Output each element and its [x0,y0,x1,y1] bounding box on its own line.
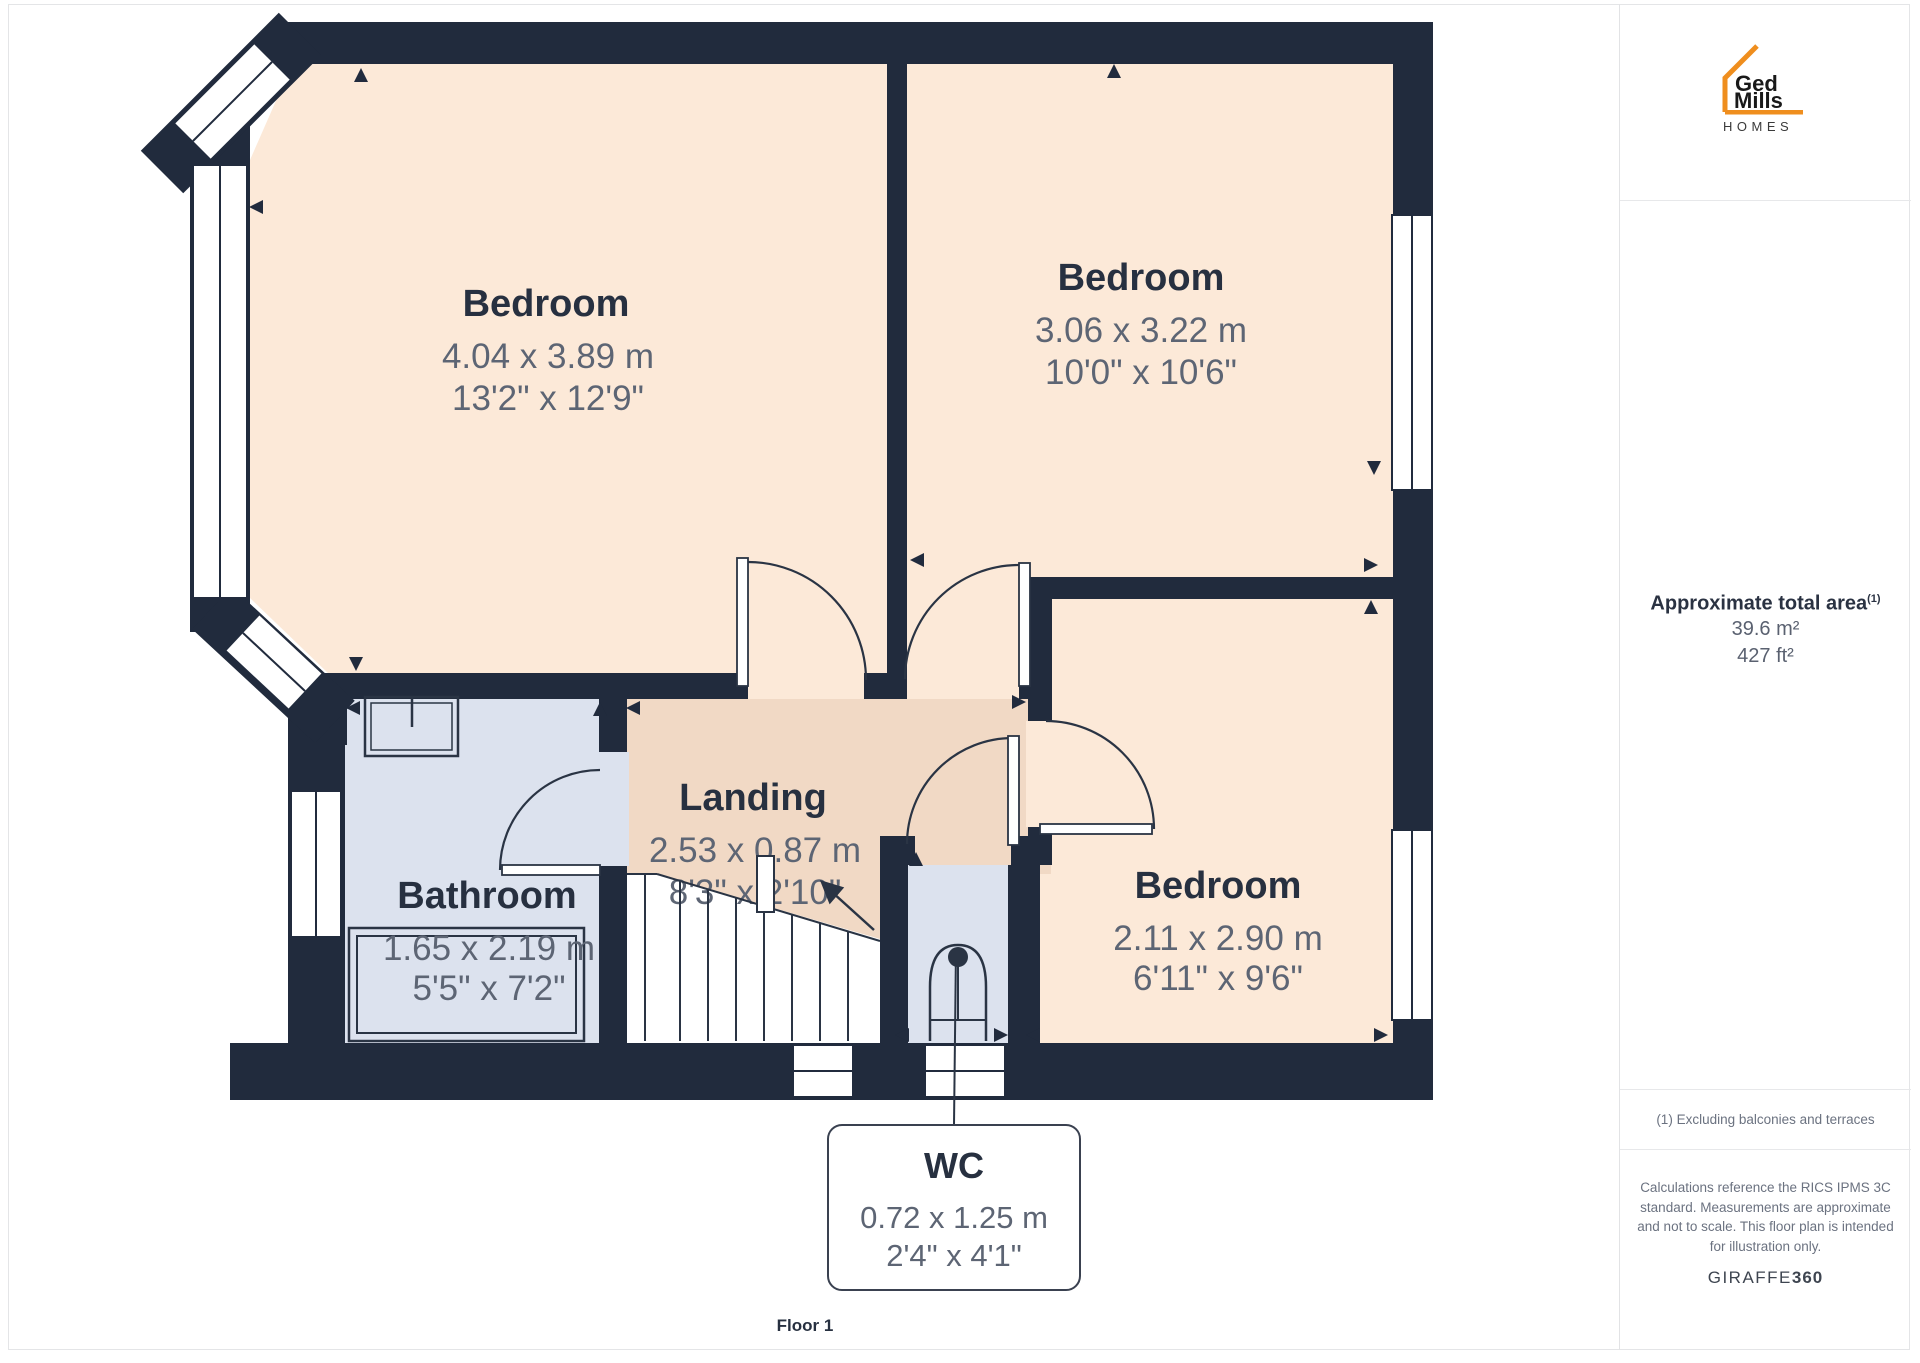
wc-callout: WC 0.72 x 1.25 m 2'4" x 4'1" [828,1125,1080,1290]
window-left [193,165,247,598]
total-area-metric: 39.6 m² [1620,616,1911,643]
room-label-wc: WC [924,1145,984,1186]
room-dims-bedroom-2-metric: 3.06 x 3.22 m [1035,311,1247,350]
room-label-landing: Landing [679,777,827,819]
room-dims-wc-imperial: 2'4" x 4'1" [886,1238,1022,1273]
provider-logo: GIRAFFE360 [1620,1268,1911,1288]
window-bedroom-3-right [1392,830,1432,1020]
room-dims-wc-metric: 0.72 x 1.25 m [860,1200,1048,1235]
brand-logo: Ged Mills HOMES [1620,4,1911,201]
total-area-title: Approximate total area(1) [1620,587,1911,616]
room-dims-landing-imperial: 8'3" x 2'10" [669,873,842,912]
window-bedroom-2-right [1392,215,1432,490]
disclaimer-section: Calculations reference the RICS IPMS 3C … [1620,1150,1911,1288]
total-area-footnote-ref: (1) [1867,593,1880,605]
total-area-summary: Approximate total area(1) 39.6 m² 427 ft… [1620,587,1911,670]
provider-name: GIRAFFE [1708,1268,1792,1287]
exclusion-footnote: (1) Excluding balconies and terraces [1620,1089,1911,1150]
room-dims-bedroom-3-imperial: 6'11" x 9'6" [1133,959,1303,998]
provider-suffix: 360 [1792,1268,1823,1287]
window-bottom-wc [925,1045,1005,1097]
window-bathroom-left [291,791,341,937]
room-label-bedroom-3: Bedroom [1135,865,1302,907]
room-dims-bedroom-3-metric: 2.11 x 2.90 m [1113,919,1322,958]
room-dims-bathroom-imperial: 5'5" x 7'2" [412,969,565,1008]
room-label-bedroom-1: Bedroom [463,283,630,325]
brand-logo-line3: HOMES [1723,119,1793,134]
room-dims-bathroom-metric: 1.65 x 2.19 m [383,929,595,968]
window-bottom-stairs [793,1045,853,1097]
room-dims-bedroom-2-imperial: 10'0" x 10'6" [1045,353,1237,392]
floor-plan: Landing 2.53 x 0.87 m 8'3" x 2'10" [0,0,1560,1358]
sidebar: Ged Mills HOMES Approximate total area(1… [1619,4,1911,1350]
stair-newel-post [757,856,774,912]
room-dims-landing-metric: 2.53 x 0.87 m [649,831,861,870]
brand-logo-icon: Ged Mills HOMES [1711,34,1821,144]
total-area-imperial: 427 ft² [1620,643,1911,670]
brand-logo-line2: Mills [1734,88,1783,113]
room-label-bathroom: Bathroom [397,875,576,917]
window-bay [193,62,272,141]
floor-plan-canvas: Landing 2.53 x 0.87 m 8'3" x 2'10" [0,0,1560,1358]
room-dims-bedroom-1-metric: 4.04 x 3.89 m [442,337,654,376]
floor-label: Floor 1 [745,1316,865,1336]
room-dims-bedroom-1-imperial: 13'2" x 12'9" [452,379,644,418]
disclaimer-text: Calculations reference the RICS IPMS 3C … [1634,1178,1897,1256]
room-label-bedroom-2: Bedroom [1058,257,1225,299]
